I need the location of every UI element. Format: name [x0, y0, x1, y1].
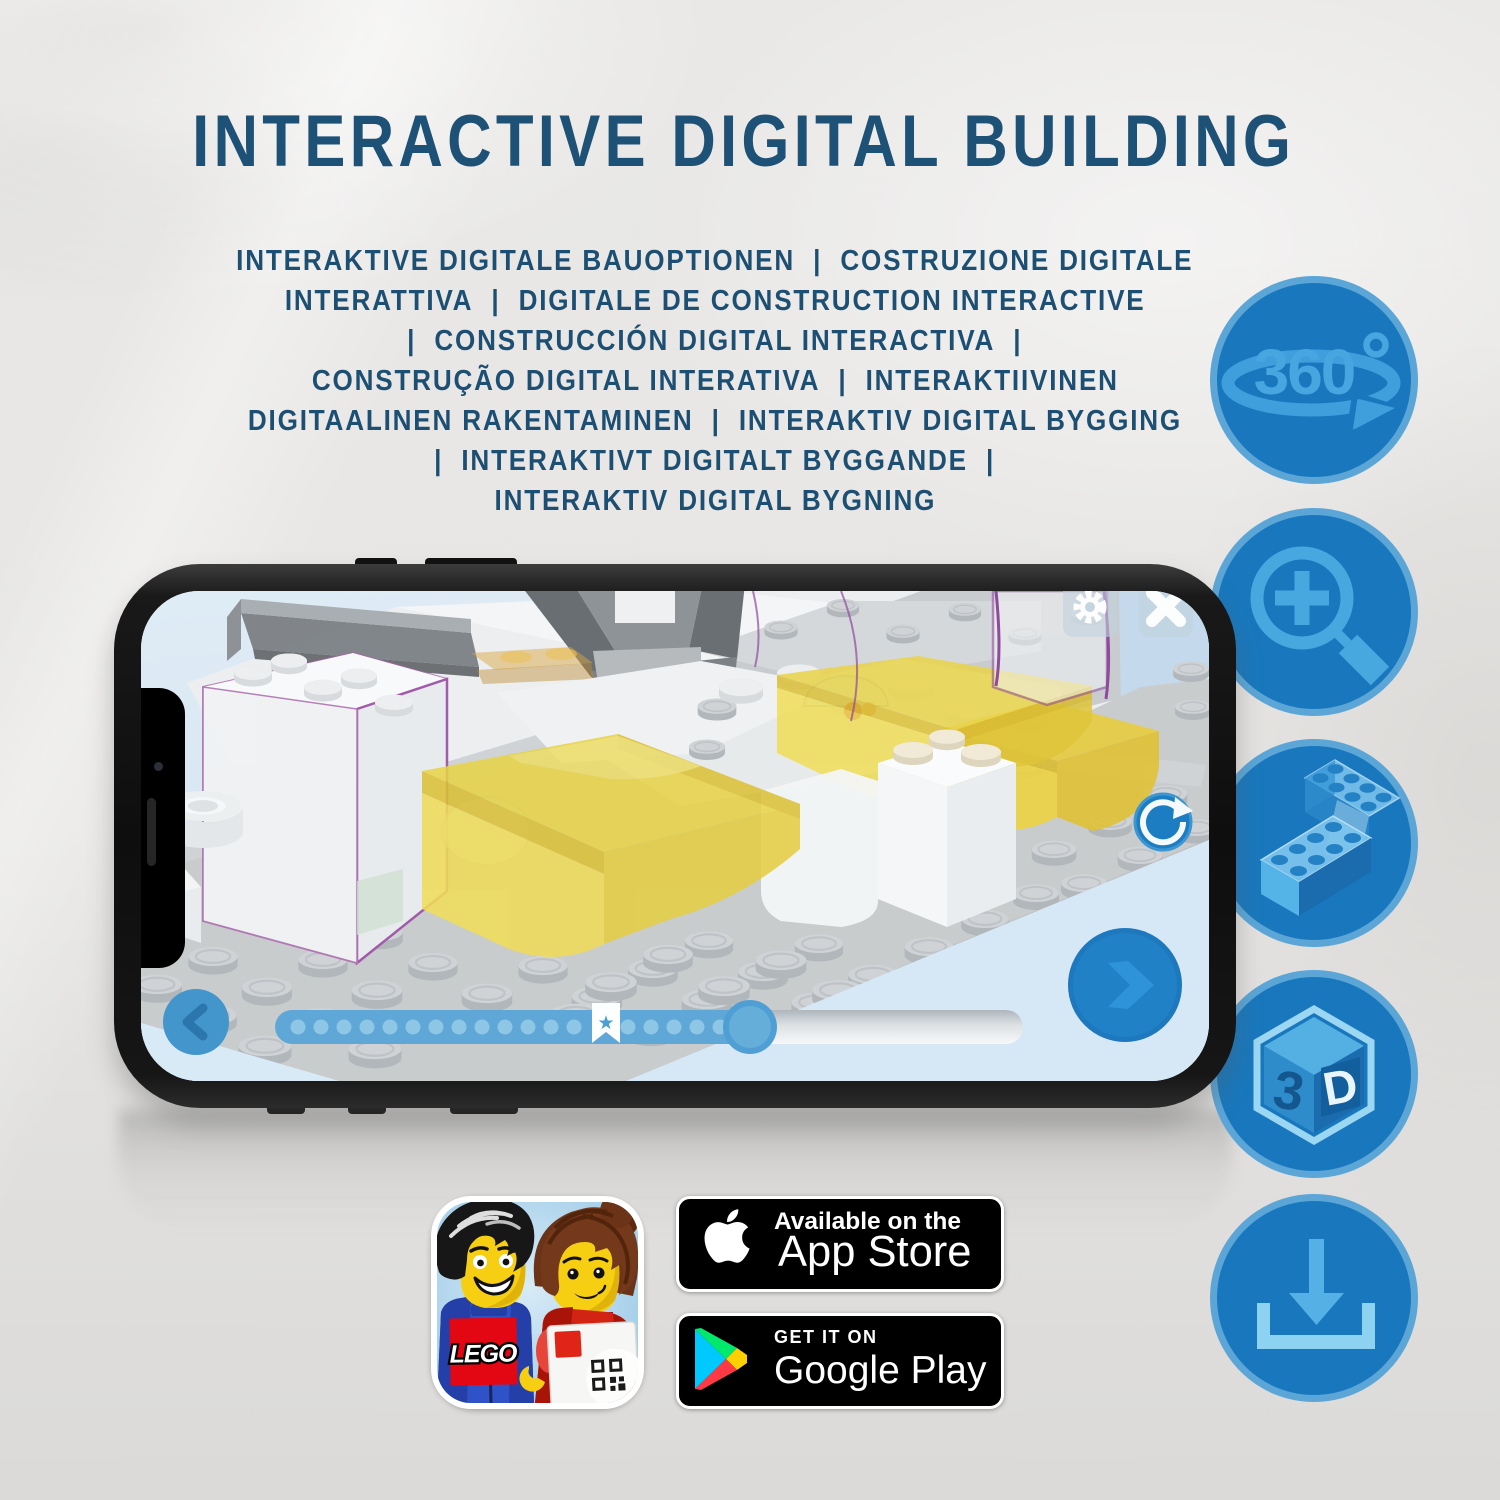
svg-text:LEGO: LEGO — [449, 1339, 518, 1368]
svg-text:360: 360 — [1254, 336, 1355, 408]
svg-text:Google Play: Google Play — [774, 1349, 987, 1392]
svg-text:App Store: App Store — [778, 1228, 971, 1276]
svg-text:★: ★ — [597, 1013, 614, 1034]
svg-text:GET IT ON: GET IT ON — [774, 1327, 878, 1347]
